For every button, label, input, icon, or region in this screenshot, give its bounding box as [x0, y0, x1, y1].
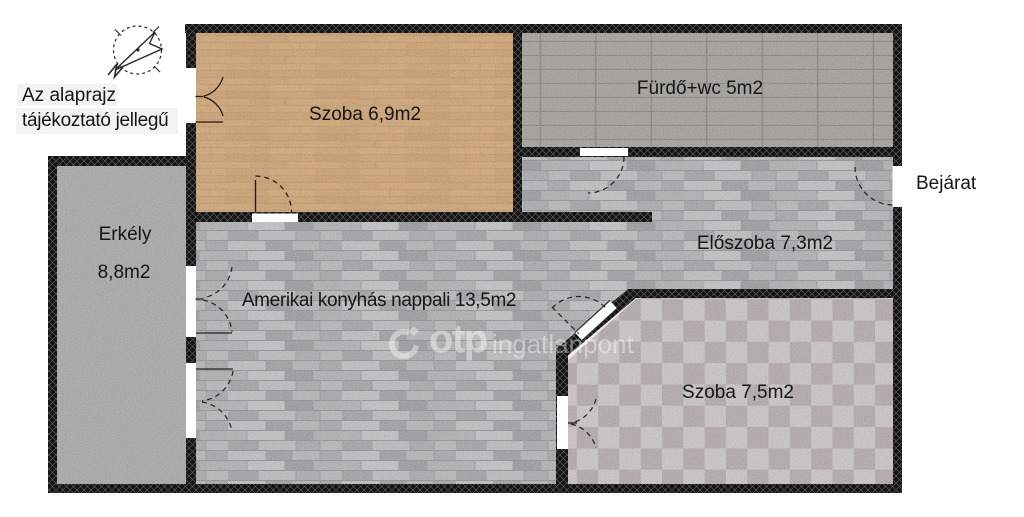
svg-text:Szoba 7,5m2: Szoba 7,5m2: [682, 382, 794, 403]
svg-text:Előszoba 7,3m2: Előszoba 7,3m2: [697, 233, 833, 254]
svg-text:Bejárat: Bejárat: [916, 173, 977, 194]
svg-text:otp: otp: [429, 317, 487, 361]
svg-text:Fürdő+wc 5m2: Fürdő+wc 5m2: [637, 78, 763, 99]
svg-text:tájékoztató jellegű: tájékoztató jellegű: [22, 110, 168, 131]
svg-text:ingatlanpont: ingatlanpont: [492, 329, 634, 359]
svg-text:Az alaprajz: Az alaprajz: [22, 85, 116, 106]
svg-text:8,8m2: 8,8m2: [98, 262, 151, 283]
svg-text:Szoba 6,9m2: Szoba 6,9m2: [309, 104, 421, 125]
svg-text:Amerikai konyhás nappali 13,5m: Amerikai konyhás nappali 13,5m2: [242, 290, 516, 311]
svg-text:Erkély: Erkély: [99, 224, 152, 245]
